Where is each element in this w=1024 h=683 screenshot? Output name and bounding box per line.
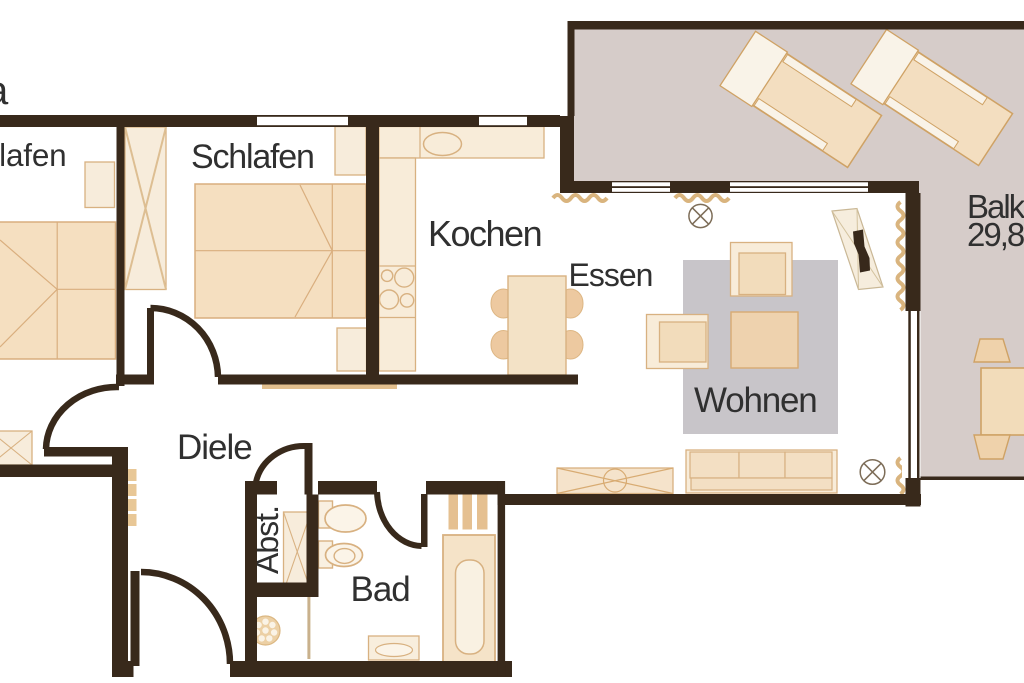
svg-text:Diele: Diele <box>177 428 252 467</box>
svg-text:a: a <box>0 69 9 113</box>
svg-text:29,87 m²: 29,87 m² <box>967 216 1024 253</box>
svg-text:Schlafen: Schlafen <box>191 138 314 176</box>
svg-text:Bad: Bad <box>351 570 410 609</box>
svg-text:Kochen: Kochen <box>428 213 541 254</box>
svg-text:Essen: Essen <box>569 257 653 293</box>
svg-text:Schlafen: Schlafen <box>0 137 67 173</box>
svg-text:Wohnen: Wohnen <box>694 381 817 420</box>
